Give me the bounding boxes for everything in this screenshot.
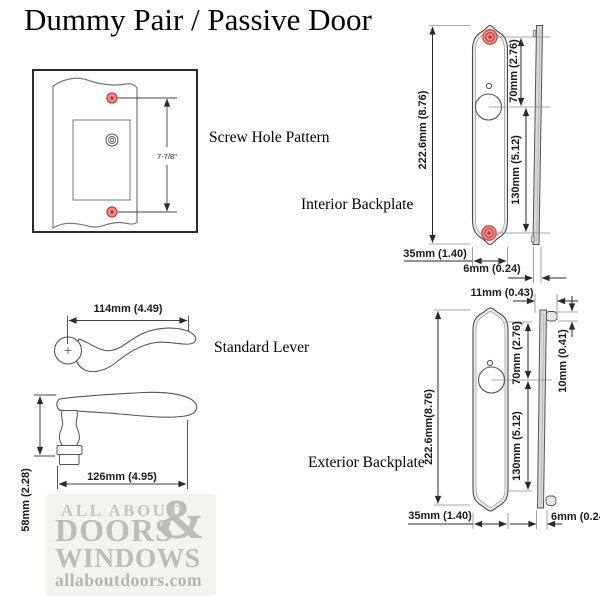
- lever-spindle-base: [60, 455, 80, 465]
- interior-screw-bottom: [482, 226, 496, 240]
- page-title: Dummy Pair / Passive Door: [24, 2, 372, 38]
- spindle-hole: [106, 134, 118, 146]
- dim-interior-top-to-center: 70mm (2.76): [508, 39, 520, 103]
- exterior-backplate-diagram: 222.6mm(8.76) 70mm (2.76) 130mm (5.12) 1…: [408, 287, 600, 529]
- interior-side-profile: [532, 26, 543, 245]
- dim-exterior-width: 35mm (1.40): [408, 510, 472, 522]
- interior-backplate-label: Interior Backplate: [301, 196, 413, 214]
- dim-lever-side-length: 126mm (4.95): [87, 471, 157, 483]
- dim-exterior-tab-height: 10mm (0.41): [557, 329, 569, 393]
- lever-side-outline: [57, 392, 197, 417]
- exterior-set-hole: [487, 360, 492, 365]
- dim-lever-height: 58mm (2.28): [20, 468, 32, 532]
- lever-stem-outline: [59, 411, 79, 446]
- dim-interior-thickness: 6mm (0.24): [463, 263, 521, 275]
- screw-hole-pattern-label: Screw Hole Pattern: [209, 129, 330, 147]
- dim-exterior-top-to-center: 70mm (2.76): [511, 321, 523, 385]
- dim-exterior-thickness: 6mm (0.24): [551, 511, 600, 523]
- spec-sheet: 7-7/8": [0, 0, 600, 600]
- interior-backplate-diagram: 222.6mm (8.76) 70mm (2.76) 130mm (5.12) …: [403, 26, 566, 284]
- lever-top-view: 114mm (4.49): [55, 303, 196, 372]
- lever-top-outline: [76, 328, 196, 372]
- standard-lever-label: Standard Lever: [214, 339, 309, 357]
- logo-website-url: allaboutdoors.com: [55, 570, 202, 591]
- dim-lever-top-length: 114mm (4.49): [93, 303, 162, 315]
- dim-interior-width: 35mm (1.40): [403, 248, 467, 260]
- dim-interior-height: 222.6mm (8.76): [417, 90, 429, 169]
- backplate-recess-outline: [73, 120, 130, 200]
- exterior-side-profile: [538, 310, 558, 508]
- exterior-backplate-label: Exterior Backplate: [308, 454, 425, 472]
- interior-screw-top: [483, 30, 497, 44]
- screw-hole-bottom: [107, 207, 117, 217]
- dim-interior-center-to-bottom: 130mm (5.12): [510, 135, 522, 205]
- dim-screw-spacing-label: 7-7/8": [157, 152, 177, 161]
- dim-exterior-center-to-bottom: 130mm (5.12): [511, 411, 523, 481]
- exterior-plate-inner-line: [476, 312, 505, 508]
- lever-stem-collar: [57, 446, 82, 455]
- screw-hole-pattern-diagram: 7-7/8": [33, 70, 197, 232]
- screw-hole-top: [107, 93, 117, 103]
- dim-exterior-tab-depth: 11mm (0.43): [471, 287, 534, 299]
- interior-set-hole: [486, 83, 491, 88]
- interior-plate-inner-line: [476, 30, 505, 241]
- company-watermark: & ALL ABOUT DOORS WINDOWS allaboutdoors.…: [46, 494, 216, 596]
